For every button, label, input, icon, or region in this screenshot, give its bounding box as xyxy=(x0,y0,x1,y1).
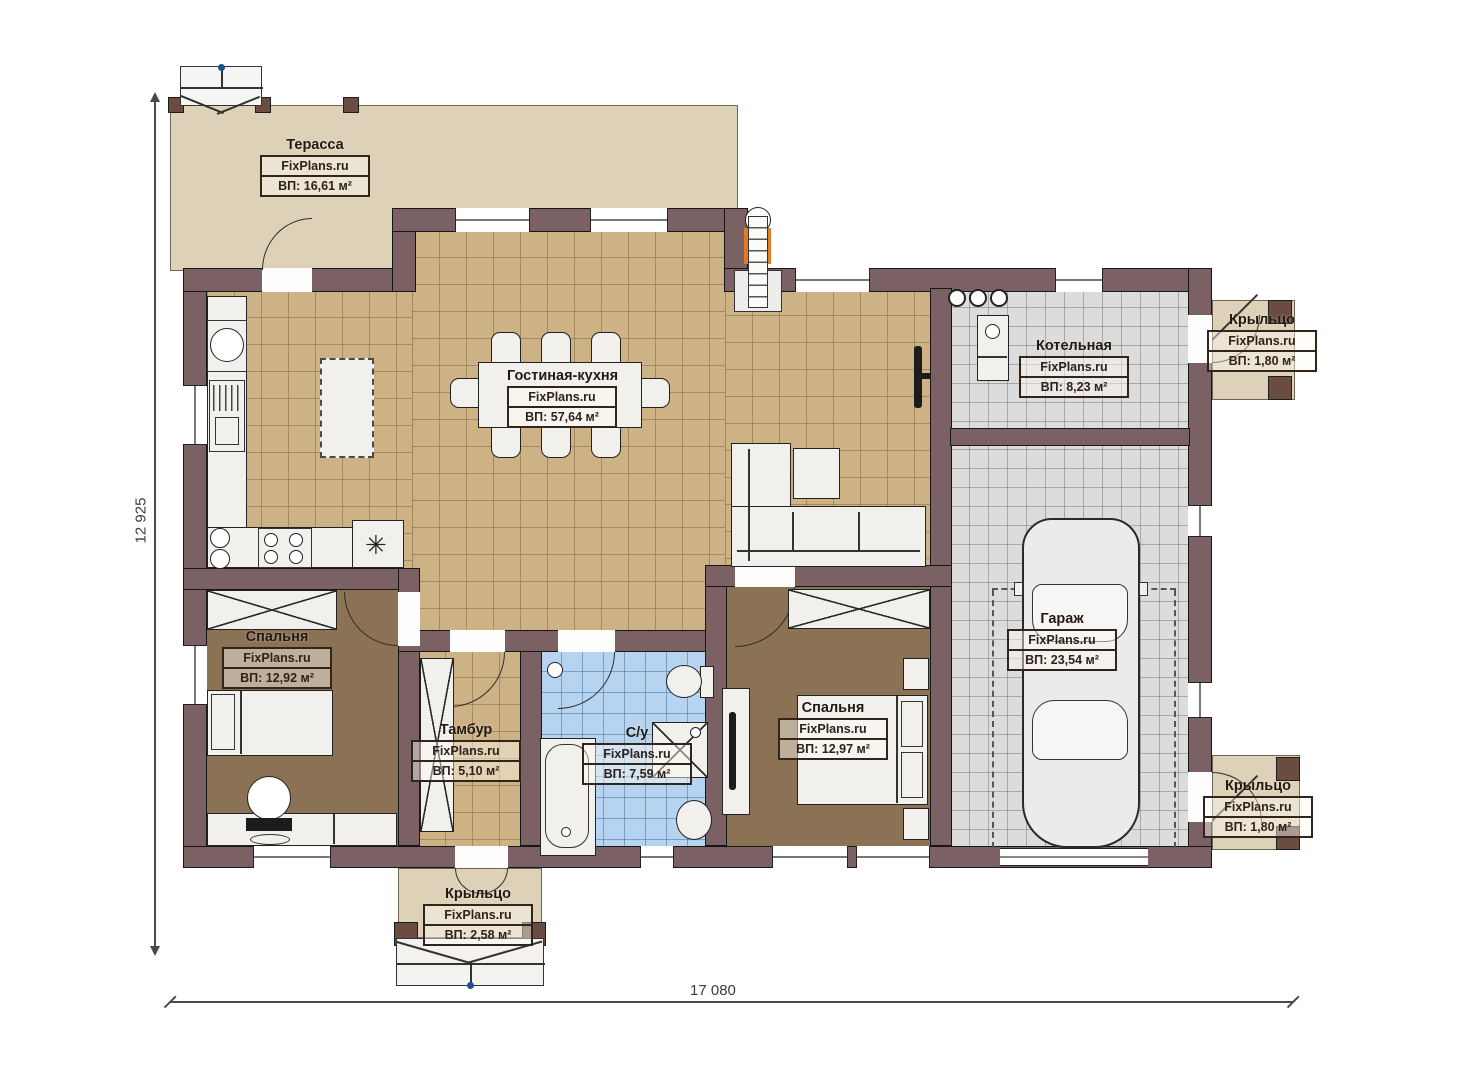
bathroom-sink xyxy=(676,800,712,840)
chimney-pipe xyxy=(748,216,768,308)
room-label-vestibule: Тамбур FixPlans.ru ВП: 5,10 м² xyxy=(411,722,521,782)
dimension-line-horizontal xyxy=(170,1001,1293,1003)
room-label-living-kitchen: Гостиная-кухня FixPlans.ru ВП: 57,64 м² xyxy=(507,368,617,428)
room-name: Крыльцо xyxy=(1207,312,1317,328)
coffee-table xyxy=(793,448,840,499)
room-name: С/у xyxy=(582,725,692,741)
parking-guide xyxy=(1174,590,1176,848)
room-label-porch-bottom: Крыльцо FixPlans.ru ВП: 2,58 м² xyxy=(423,886,533,946)
room-area: ВП: 1,80 м² xyxy=(1205,816,1311,836)
brand-watermark: FixPlans.ru xyxy=(509,388,615,406)
room-area: ВП: 8,23 м² xyxy=(1021,376,1127,396)
fridge-box xyxy=(215,417,239,445)
tv-living-mount xyxy=(921,373,931,379)
desk-monitor xyxy=(246,818,292,831)
tv-bedroom xyxy=(729,712,736,790)
room-label-box: FixPlans.ru ВП: 12,92 м² xyxy=(222,647,332,689)
window xyxy=(590,208,668,232)
room-name: Крыльцо xyxy=(1203,778,1313,794)
floor-plan-canvas: ✳ xyxy=(0,0,1473,1080)
room-label-box: FixPlans.ru ВП: 7,59 м² xyxy=(582,743,692,785)
fridge xyxy=(209,380,245,452)
wall-vestibule-bath xyxy=(520,650,542,846)
burner xyxy=(289,533,303,547)
dining-chair xyxy=(491,424,521,458)
dining-chair xyxy=(638,378,670,408)
room-label-box: FixPlans.ru ВП: 2,58 м² xyxy=(423,904,533,946)
room-area: ВП: 1,80 м² xyxy=(1209,350,1315,370)
room-label-bedroom-right: Спальня FixPlans.ru ВП: 12,97 м² xyxy=(778,700,888,760)
room-name: Гостиная-кухня xyxy=(507,368,617,384)
room-name: Крыльцо xyxy=(423,886,533,902)
bed-single xyxy=(207,690,333,756)
room-area: ВП: 16,61 м² xyxy=(262,175,368,195)
fridge-vents xyxy=(213,385,241,411)
stairs-dot xyxy=(218,64,225,71)
wall-bay-top xyxy=(392,208,748,232)
garage-gate xyxy=(1000,848,1148,866)
boiler-gauge xyxy=(969,289,987,307)
room-label-box: FixPlans.ru ВП: 12,97 м² xyxy=(778,718,888,760)
room-label-box: FixPlans.ru ВП: 57,64 м² xyxy=(507,386,617,428)
window xyxy=(455,208,530,232)
room-name: Котельная xyxy=(1019,338,1129,354)
terrace-doorway xyxy=(262,268,312,292)
window xyxy=(856,846,930,868)
bed-line xyxy=(896,696,898,803)
wardrobe xyxy=(207,590,337,630)
kitchen-sink-bowl xyxy=(210,549,230,569)
sofa-cushion-line xyxy=(792,512,794,550)
bedroom1-doorway xyxy=(398,592,420,646)
kitchen-island xyxy=(320,358,374,458)
burner xyxy=(264,550,278,564)
room-label-bathroom: С/у FixPlans.ru ВП: 7,59 м² xyxy=(582,725,692,785)
steps-dot xyxy=(467,982,474,989)
boiler-unit xyxy=(977,315,1009,381)
stairs-line xyxy=(181,87,263,89)
brand-watermark: FixPlans.ru xyxy=(224,649,330,667)
window xyxy=(1188,682,1212,718)
nightstand xyxy=(903,808,929,840)
room-label-boiler: Котельная FixPlans.ru ВП: 8,23 м² xyxy=(1019,338,1129,398)
terrace-column xyxy=(343,97,359,113)
nightstand xyxy=(903,658,929,690)
brand-watermark: FixPlans.ru xyxy=(1209,332,1315,350)
room-label-box: FixPlans.ru ВП: 1,80 м² xyxy=(1203,796,1313,838)
burner xyxy=(264,533,278,547)
brand-watermark: FixPlans.ru xyxy=(413,742,519,760)
window xyxy=(183,645,207,705)
boiler-line xyxy=(978,356,1007,358)
dining-chair xyxy=(491,332,521,366)
sofa-seat xyxy=(731,506,926,567)
kitchen-sink-bowl xyxy=(210,528,230,548)
dimension-width-label: 17 080 xyxy=(690,982,736,999)
sofa-cushion-line xyxy=(858,512,860,550)
brand-watermark: FixPlans.ru xyxy=(584,745,690,763)
room-name: Терасса xyxy=(260,137,370,153)
dining-chair xyxy=(591,332,621,366)
burner xyxy=(289,550,303,564)
room-label-porch-bottom-right: Крыльцо FixPlans.ru ВП: 1,80 м² xyxy=(1203,778,1313,838)
window xyxy=(772,846,848,868)
car-mirror xyxy=(1014,582,1023,596)
desk-chair xyxy=(247,776,291,820)
car-mirror xyxy=(1139,582,1148,596)
pillow xyxy=(901,752,923,798)
room-name: Гараж xyxy=(1007,611,1117,627)
room-label-garage: Гараж FixPlans.ru ВП: 23,54 м² xyxy=(1007,611,1117,671)
window xyxy=(183,385,207,445)
room-label-porch-top-right: Крыльцо FixPlans.ru ВП: 1,80 м² xyxy=(1207,312,1317,372)
room-name: Спальня xyxy=(222,629,332,645)
room-area: ВП: 12,92 м² xyxy=(224,667,330,687)
boiler-dial xyxy=(985,324,1000,339)
exterior-stairs-top-left xyxy=(180,66,262,106)
porch-column xyxy=(1268,376,1292,400)
brand-watermark: FixPlans.ru xyxy=(1009,631,1115,649)
room-area: ВП: 23,54 м² xyxy=(1009,649,1115,669)
room-label-box: FixPlans.ru ВП: 5,10 м² xyxy=(411,740,521,782)
desk-chair-base xyxy=(250,834,290,845)
window xyxy=(253,846,331,868)
room-area: ВП: 2,58 м² xyxy=(425,924,531,944)
kitchen-sink-round xyxy=(210,328,244,362)
floor-drain xyxy=(547,662,563,678)
window xyxy=(795,268,870,292)
stove xyxy=(258,528,312,568)
toilet-bowl xyxy=(666,665,702,698)
bedroom2-doorway xyxy=(735,565,795,587)
appliance-star-icon: ✳ xyxy=(365,532,387,558)
room-label-box: FixPlans.ru ВП: 1,80 м² xyxy=(1207,330,1317,372)
window xyxy=(1055,268,1103,292)
dining-chair xyxy=(591,424,621,458)
dimension-line-vertical xyxy=(154,98,156,948)
room-area: ВП: 57,64 м² xyxy=(509,406,615,426)
dining-chair xyxy=(541,332,571,366)
wall-bedroom1-top xyxy=(183,568,417,590)
desk xyxy=(207,813,397,846)
room-name: Спальня xyxy=(778,700,888,716)
car-rear-window xyxy=(1032,700,1128,760)
car xyxy=(1022,518,1140,848)
boiler-gauge xyxy=(990,289,1008,307)
dim-arrow-down xyxy=(150,946,160,956)
room-label-box: FixPlans.ru ВП: 16,61 м² xyxy=(260,155,370,197)
brand-watermark: FixPlans.ru xyxy=(425,906,531,924)
room-label-bedroom-left: Спальня FixPlans.ru ВП: 12,92 м² xyxy=(222,629,332,689)
room-area: ВП: 12,97 м² xyxy=(780,738,886,758)
front-doorway xyxy=(455,846,508,868)
wardrobe xyxy=(788,589,930,629)
pillow xyxy=(211,694,235,750)
wall-boiler-garage xyxy=(950,428,1190,446)
room-name: Тамбур xyxy=(411,722,521,738)
desk-divider xyxy=(333,814,335,844)
dimension-height-label: 12 925 xyxy=(133,486,150,556)
pillow xyxy=(901,701,923,747)
dresser-tv-stand xyxy=(722,688,750,815)
dim-arrow-up xyxy=(150,92,160,102)
parking-guide xyxy=(992,590,994,848)
room-label-box: FixPlans.ru ВП: 23,54 м² xyxy=(1007,629,1117,671)
brand-watermark: FixPlans.ru xyxy=(780,720,886,738)
vestibule-doorway xyxy=(450,630,505,652)
brand-watermark: FixPlans.ru xyxy=(1021,358,1127,376)
toilet-tank xyxy=(700,666,714,698)
room-label-terrace: Терасса FixPlans.ru ВП: 16,61 м² xyxy=(260,137,370,197)
bathroom-doorway xyxy=(558,630,615,652)
sofa-line xyxy=(748,449,750,561)
window xyxy=(640,846,674,868)
room-area: ВП: 7,59 м² xyxy=(584,763,690,783)
brand-watermark: FixPlans.ru xyxy=(262,157,368,175)
sofa-line xyxy=(737,550,920,552)
brand-watermark: FixPlans.ru xyxy=(1205,798,1311,816)
boiler-gauge xyxy=(948,289,966,307)
bed-line xyxy=(240,691,242,754)
room-area: ВП: 5,10 м² xyxy=(413,760,519,780)
bathtub-drain xyxy=(561,827,571,837)
window xyxy=(1188,505,1212,537)
room-label-box: FixPlans.ru ВП: 8,23 м² xyxy=(1019,356,1129,398)
dining-chair xyxy=(541,424,571,458)
